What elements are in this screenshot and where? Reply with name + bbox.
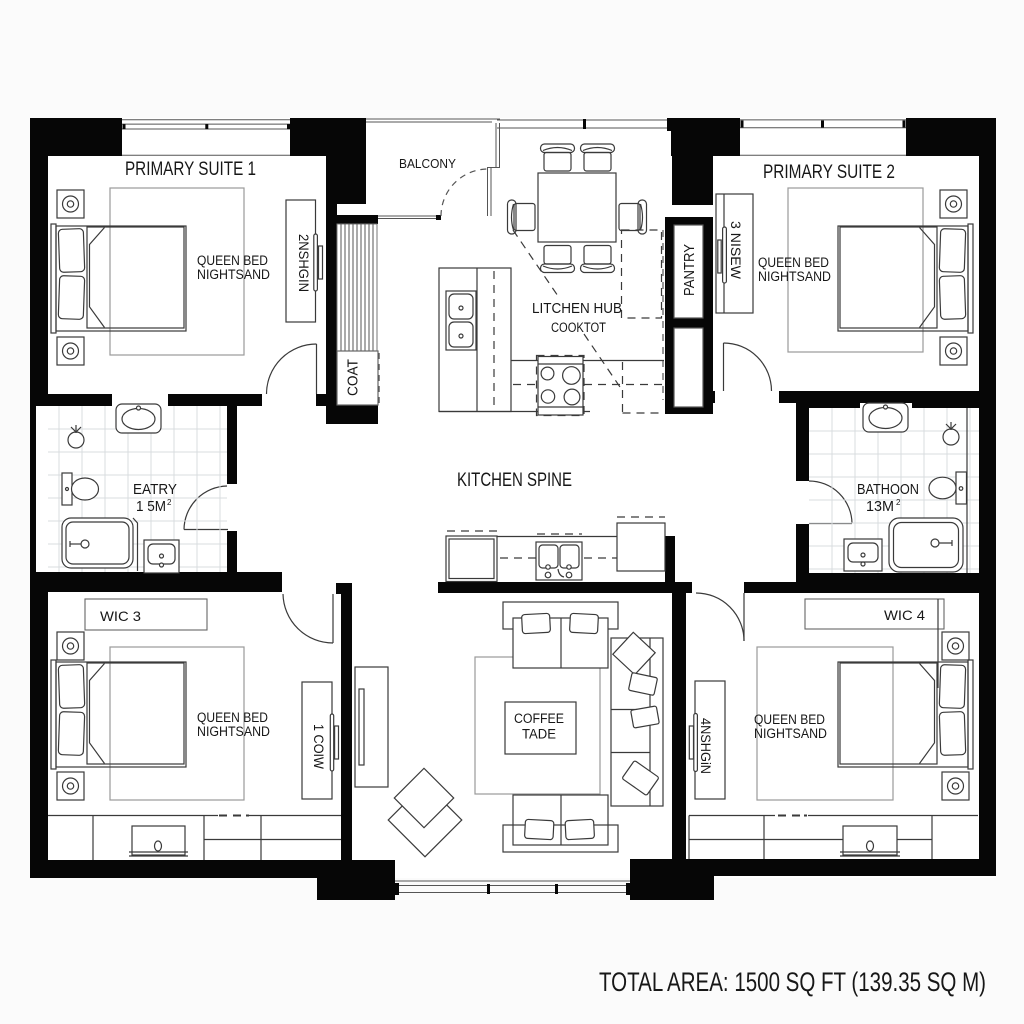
svg-text:QUEEN BED: QUEEN BED: [197, 253, 268, 268]
svg-text:TOTAL AREA: 1500 SQ FT (139.35: TOTAL AREA: 1500 SQ FT (139.35 SQ M): [599, 967, 986, 997]
svg-text:1 COIW: 1 COIW: [311, 724, 327, 770]
svg-text:PANTRY: PANTRY: [682, 244, 698, 296]
svg-text:WIC 3: WIC 3: [100, 608, 141, 624]
svg-text:QUEEN BED: QUEEN BED: [758, 255, 829, 270]
svg-text:BALCONY: BALCONY: [399, 156, 456, 171]
svg-text:COOKTOT: COOKTOT: [551, 320, 606, 335]
svg-text:EATRY: EATRY: [133, 481, 177, 498]
svg-text:2: 2: [167, 498, 172, 507]
svg-text:2NSHGIN: 2NSHGIN: [296, 234, 312, 292]
svg-text:NIGHTSAND: NIGHTSAND: [754, 726, 827, 741]
svg-text:COAT: COAT: [346, 359, 362, 396]
svg-text:NIGHTSAND: NIGHTSAND: [197, 267, 270, 282]
svg-text:NIGHTSAND: NIGHTSAND: [197, 724, 270, 739]
svg-text:3 NISEW: 3 NISEW: [728, 221, 744, 280]
svg-text:QUEEN BED: QUEEN BED: [197, 710, 268, 725]
svg-text:2: 2: [896, 498, 901, 507]
svg-text:QUEEN BED: QUEEN BED: [754, 712, 825, 727]
svg-text:PRIMARY SUITE 2: PRIMARY SUITE 2: [763, 162, 895, 183]
svg-text:LITCHEN HUB: LITCHEN HUB: [532, 300, 622, 317]
svg-text:NIGHTSAND: NIGHTSAND: [758, 269, 831, 284]
svg-text:4NSHGiN: 4NSHGiN: [698, 718, 714, 774]
svg-text:13M: 13M: [866, 498, 894, 515]
svg-text:1 5M: 1 5M: [136, 498, 166, 515]
svg-text:TADE: TADE: [522, 727, 556, 742]
svg-text:WIC 4: WIC 4: [884, 607, 925, 623]
svg-text:PRIMARY SUITE 1: PRIMARY SUITE 1: [125, 159, 256, 180]
svg-text:KITCHEN SPINE: KITCHEN SPINE: [457, 470, 572, 491]
svg-text:BATHOON: BATHOON: [857, 481, 919, 498]
svg-text:COFFEE: COFFEE: [514, 711, 564, 726]
